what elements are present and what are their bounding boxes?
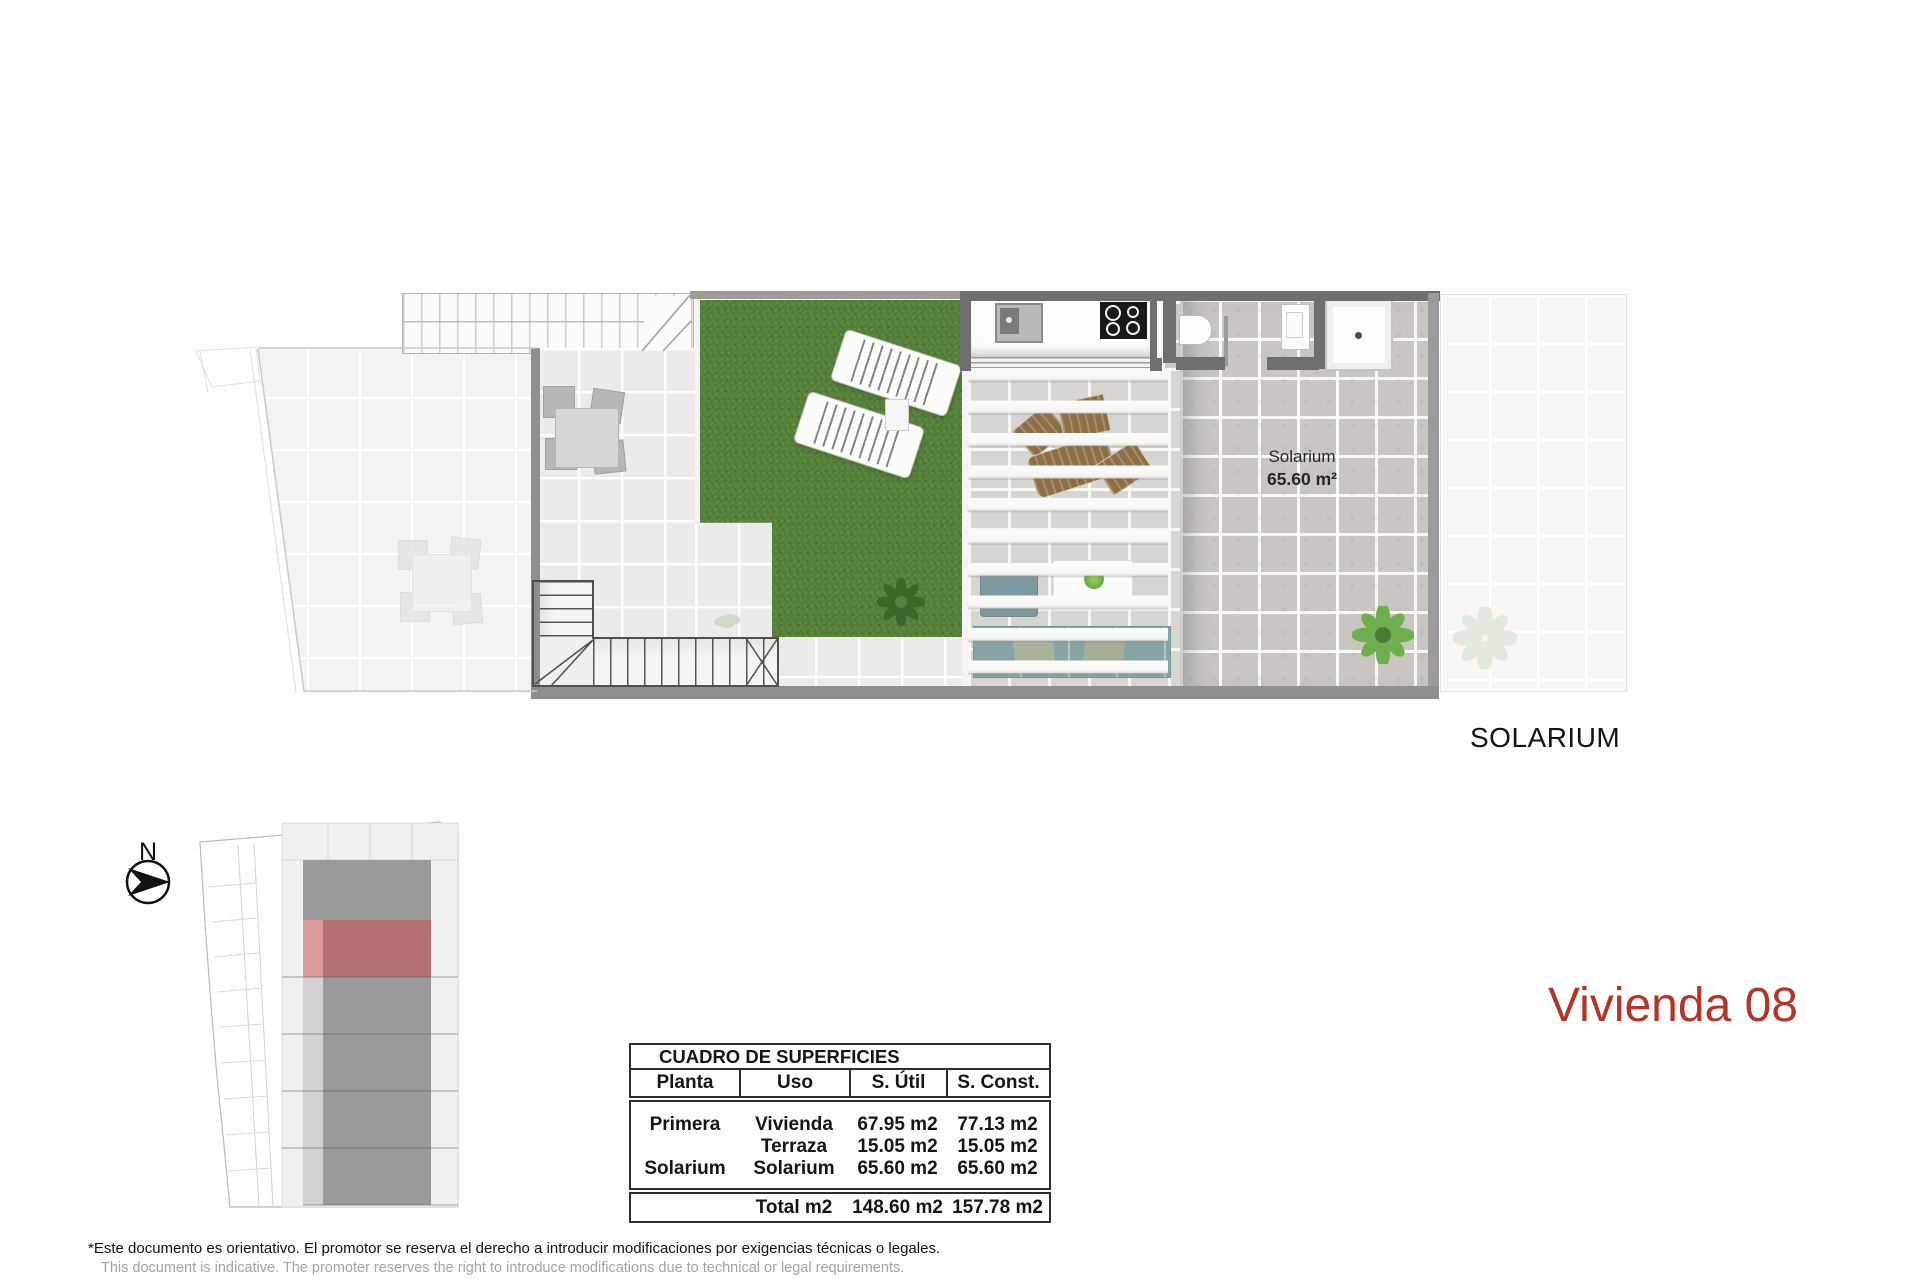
- kitchen-sink-icon: [995, 303, 1043, 343]
- neighbour-roof-left: [255, 345, 537, 693]
- wall: [1267, 357, 1319, 370]
- cell-sconst: 77.13 m2: [946, 1114, 1049, 1136]
- hob-icon: [1100, 302, 1147, 339]
- sink-drain: [1006, 317, 1012, 323]
- section-label: SOLARIUM: [1470, 722, 1620, 754]
- faded-plant-icon: [706, 601, 748, 637]
- cell-sutil: 15.05 m2: [849, 1136, 946, 1158]
- wall: [960, 291, 1160, 301]
- wall: [690, 291, 962, 299]
- stairs-flight-down: [533, 581, 593, 638]
- neighbour-roof-right: [1441, 295, 1626, 691]
- surface-table-header-box: CUADRO DE SUPERFICIES Planta Uso S. Útil…: [629, 1043, 1051, 1098]
- surface-table-headers: Planta Uso S. Útil S. Const.: [631, 1070, 1049, 1096]
- table-row: Solarium Solarium 65.60 m2 65.60 m2: [631, 1158, 1049, 1180]
- cell-sutil: 67.95 m2: [849, 1114, 946, 1136]
- cell-planta: [631, 1194, 739, 1221]
- wall: [1176, 357, 1225, 370]
- table-total-row: Total m2 148.60 m2 157.78 m2: [631, 1194, 1049, 1221]
- cell-sutil: 65.60 m2: [849, 1158, 946, 1180]
- cell-uso: Vivienda: [739, 1114, 849, 1136]
- toilet-icon: [1179, 315, 1212, 345]
- plant-icon: [1352, 606, 1414, 664]
- table-row: Primera Vivienda 67.95 m2 77.13 m2: [631, 1114, 1049, 1136]
- stairs-flight-across: [593, 638, 778, 686]
- room-name: Solarium: [1268, 447, 1335, 466]
- col-header-sutil: S. Útil: [849, 1070, 946, 1096]
- side-table-icon: [885, 399, 909, 431]
- room-area: 65.60 m²: [1267, 469, 1337, 489]
- floorplan-sheet: Solarium 65.60 m²: [0, 0, 1920, 1280]
- sheet-title: Vivienda 08: [1548, 978, 1798, 1033]
- cell-planta: Primera: [631, 1114, 739, 1136]
- neighbour-stairs-strip: [402, 293, 694, 354]
- table-icon: [412, 554, 472, 612]
- faded-table-set: [398, 538, 498, 626]
- site-key-plan: N: [118, 815, 470, 1247]
- shower-tray-icon: [1325, 299, 1393, 371]
- surface-table-body: Primera Vivienda 67.95 m2 77.13 m2 Terra…: [629, 1100, 1051, 1190]
- wall: [531, 686, 1439, 699]
- cistern-icon: [1281, 304, 1310, 350]
- wall: [1428, 293, 1439, 693]
- building-mass: [303, 860, 431, 920]
- col-header-sconst: S. Const.: [946, 1070, 1049, 1096]
- pergola-slats: [968, 368, 1168, 688]
- highlighted-unit: [323, 920, 431, 977]
- disclaimer-spanish: *Este documento es orientativo. El promo…: [88, 1240, 940, 1257]
- cell-total-sconst: 157.78 m2: [946, 1194, 1049, 1221]
- cell-uso: Solarium: [739, 1158, 849, 1180]
- terrace-table-set: [543, 386, 643, 486]
- surface-table: CUADRO DE SUPERFICIES Planta Uso S. Útil…: [629, 1043, 1051, 1225]
- table-row: Terraza 15.05 m2 15.05 m2: [631, 1136, 1049, 1158]
- surface-table-total-box: Total m2 148.60 m2 157.78 m2: [629, 1192, 1051, 1223]
- surface-table-title: CUADRO DE SUPERFICIES: [631, 1045, 1049, 1070]
- terrace-floor-bottom: [772, 633, 968, 688]
- wall: [1160, 291, 1440, 301]
- cell-planta: [631, 1136, 739, 1158]
- cistern-lid: [1286, 312, 1303, 338]
- faded-plant-icon: [1453, 607, 1517, 669]
- north-arrow-icon: [127, 861, 170, 903]
- stairs-corner: [533, 638, 593, 686]
- cell-total-label: Total m2: [739, 1194, 849, 1221]
- wall: [1314, 291, 1325, 369]
- highlighted-unit-light: [303, 920, 323, 977]
- plant-icon: [877, 578, 925, 626]
- disclaimer-english: This document is indicative. The promote…: [101, 1260, 904, 1276]
- wall: [531, 348, 540, 693]
- col-header-planta: Planta: [631, 1070, 739, 1096]
- col-header-uso: Uso: [739, 1070, 849, 1096]
- cell-planta: Solarium: [631, 1158, 739, 1180]
- pergola-area: [968, 368, 1180, 688]
- cell-sconst: 15.05 m2: [946, 1136, 1049, 1158]
- solarium-room-label: Solarium 65.60 m²: [1232, 446, 1372, 491]
- shower-drain: [1355, 332, 1362, 339]
- cell-total-sutil: 148.60 m2: [849, 1194, 946, 1221]
- cell-sconst: 65.60 m2: [946, 1158, 1049, 1180]
- cell-uso: Terraza: [739, 1136, 849, 1158]
- table-icon: [555, 408, 619, 468]
- wall: [1163, 291, 1176, 363]
- wall: [960, 291, 971, 371]
